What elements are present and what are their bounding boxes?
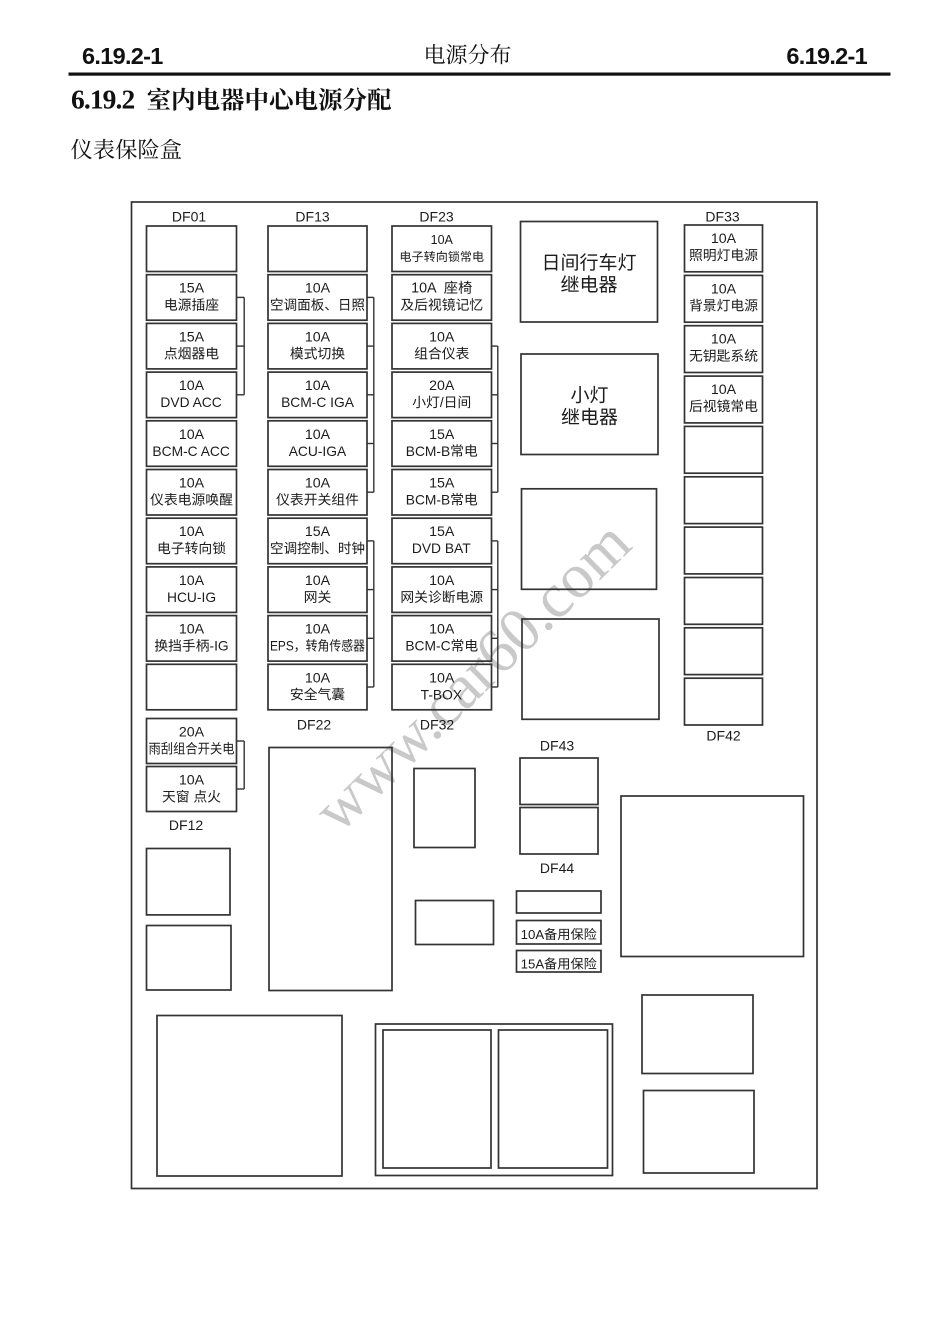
svg-text:10A: 10A — [305, 427, 331, 443]
svg-text:10A: 10A — [305, 281, 331, 297]
svg-text:10A: 10A — [429, 622, 455, 638]
svg-text:15A: 15A — [179, 281, 205, 297]
svg-text:10A: 10A — [521, 927, 545, 942]
svg-text:/: / — [440, 395, 444, 410]
svg-text:10A: 10A — [179, 622, 205, 638]
svg-text:10A: 10A — [179, 524, 205, 540]
svg-text:20A: 20A — [429, 378, 455, 394]
svg-text:10A: 10A — [305, 573, 331, 589]
svg-text:-IG: -IG — [210, 639, 229, 654]
svg-text:6.19.2-1: 6.19.2-1 — [82, 43, 163, 69]
svg-text:BCM-C ACC: BCM-C ACC — [152, 444, 229, 459]
svg-text:BCM-C: BCM-C — [405, 639, 450, 654]
svg-text:10A: 10A — [431, 233, 454, 247]
svg-text:10A: 10A — [179, 573, 205, 589]
svg-text:10A: 10A — [711, 231, 737, 247]
svg-text:DF01: DF01 — [172, 209, 206, 225]
svg-text:BCM-C IGA: BCM-C IGA — [281, 395, 355, 410]
svg-text:DF12: DF12 — [169, 817, 203, 833]
svg-text:10A: 10A — [305, 378, 331, 394]
svg-text:DF13: DF13 — [295, 209, 329, 225]
svg-text:10A: 10A — [179, 378, 205, 394]
svg-text:DF32: DF32 — [420, 717, 454, 733]
svg-text:EPS: EPS — [270, 638, 294, 654]
svg-text:15A: 15A — [521, 957, 545, 972]
svg-text:10A: 10A — [429, 573, 455, 589]
svg-text:10A: 10A — [305, 622, 331, 638]
svg-text:15A: 15A — [429, 476, 455, 492]
svg-text:DF22: DF22 — [297, 717, 331, 733]
svg-text:15A: 15A — [179, 329, 205, 345]
svg-text:6.19.2: 6.19.2 — [71, 84, 135, 115]
svg-text:DF43: DF43 — [540, 738, 574, 754]
svg-text:10A: 10A — [711, 281, 737, 297]
svg-text:15A: 15A — [429, 427, 455, 443]
svg-text:10A: 10A — [305, 476, 331, 492]
svg-text:15A: 15A — [429, 524, 455, 540]
svg-text:BCM-B: BCM-B — [406, 444, 450, 459]
svg-text:15A: 15A — [305, 524, 331, 540]
svg-text:ACU-IGA: ACU-IGA — [289, 444, 347, 459]
svg-text:DF42: DF42 — [706, 728, 740, 744]
svg-text:6.19.2-1: 6.19.2-1 — [786, 43, 867, 69]
svg-text:DVD ACC: DVD ACC — [160, 395, 221, 410]
svg-text:10A: 10A — [305, 329, 331, 345]
svg-text:10A: 10A — [179, 476, 205, 492]
svg-text:DF33: DF33 — [705, 209, 739, 225]
svg-text:10A: 10A — [429, 670, 455, 686]
svg-text:DF23: DF23 — [419, 209, 453, 225]
svg-text:DF44: DF44 — [540, 860, 574, 876]
svg-text:T-BOX: T-BOX — [421, 687, 462, 702]
svg-text:DVD BAT: DVD BAT — [412, 541, 471, 556]
svg-text:10A: 10A — [711, 332, 737, 348]
svg-text:10A: 10A — [179, 427, 205, 443]
svg-text:10A: 10A — [711, 382, 737, 398]
svg-text:10A: 10A — [429, 329, 455, 345]
svg-text:10A: 10A — [179, 773, 205, 789]
svg-text:www.car60.com: www.car60.com — [300, 507, 644, 845]
svg-text:BCM-B: BCM-B — [406, 493, 450, 508]
svg-text:10A: 10A — [411, 281, 437, 297]
svg-text:20A: 20A — [179, 725, 205, 741]
svg-text:HCU-IG: HCU-IG — [167, 590, 216, 605]
svg-text:10A: 10A — [305, 670, 331, 686]
